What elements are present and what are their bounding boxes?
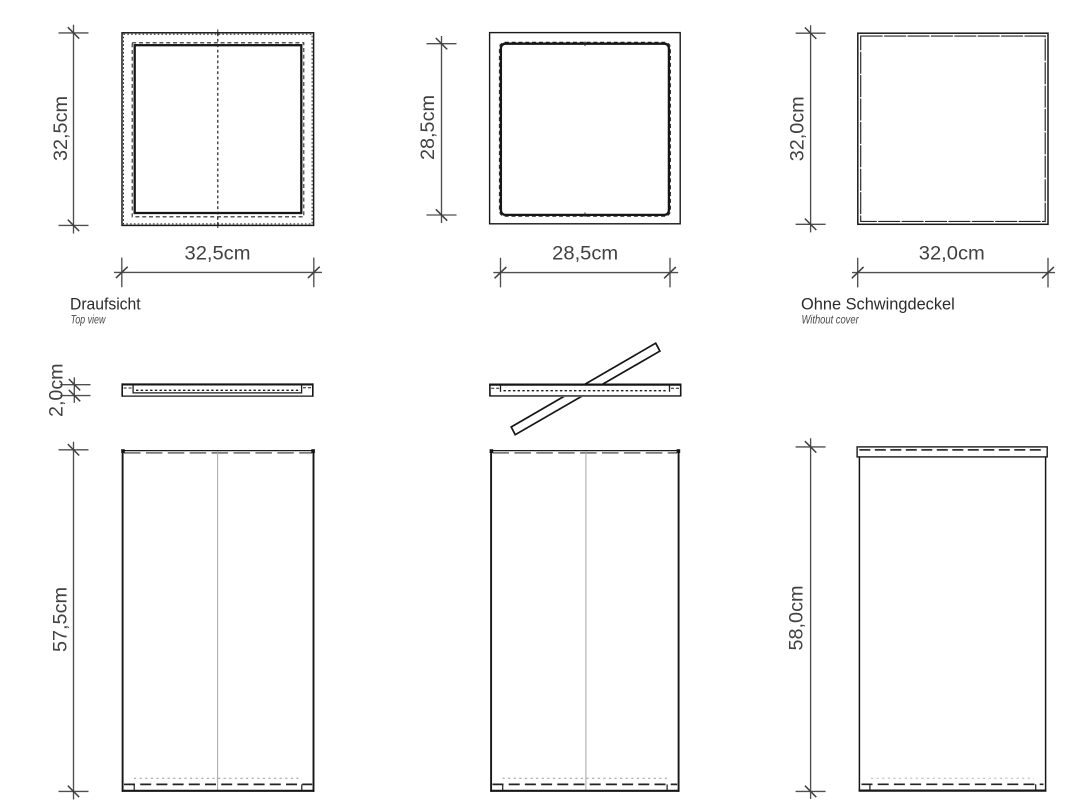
svg-text:28,5cm: 28,5cm bbox=[552, 243, 618, 264]
svg-text:28,5cm: 28,5cm bbox=[418, 95, 439, 160]
svg-text:32,5cm: 32,5cm bbox=[51, 96, 72, 161]
svg-text:32,0cm: 32,0cm bbox=[788, 96, 809, 161]
svg-text:Draufsicht: Draufsicht bbox=[70, 295, 141, 314]
svg-text:32,0cm: 32,0cm bbox=[919, 243, 985, 264]
svg-text:Ohne Schwingdeckel: Ohne Schwingdeckel bbox=[801, 295, 955, 314]
svg-text:58,0cm: 58,0cm bbox=[787, 586, 808, 651]
svg-text:Without cover: Without cover bbox=[802, 314, 860, 327]
svg-text:32,5cm: 32,5cm bbox=[185, 243, 251, 264]
svg-text:Top view: Top view bbox=[71, 314, 107, 327]
svg-text:57,5cm: 57,5cm bbox=[51, 587, 72, 652]
svg-text:2,0cm: 2,0cm bbox=[47, 363, 68, 417]
